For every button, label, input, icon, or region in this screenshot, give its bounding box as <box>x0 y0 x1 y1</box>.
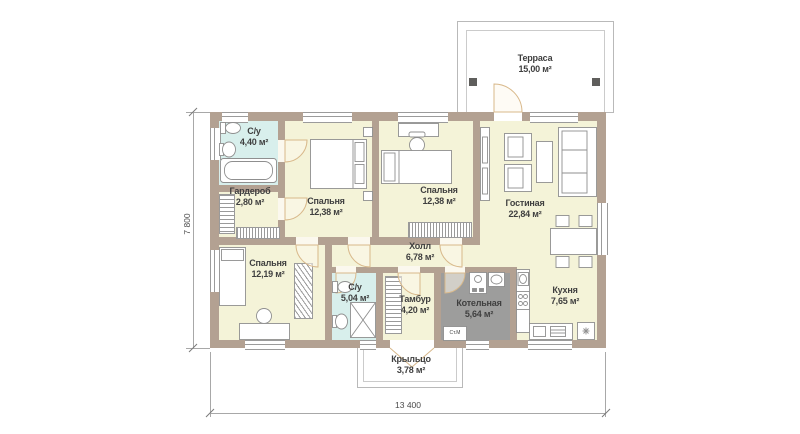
window-dining-right <box>597 203 608 255</box>
dimension-width-label: 13 400 <box>376 400 440 410</box>
room-name: Спальня <box>408 185 470 196</box>
room-name: Крыльцо <box>378 354 444 365</box>
room-name: Гардероб <box>218 186 282 197</box>
washing-machine-label: Ст.М <box>444 330 466 336</box>
room-name: Кухня <box>534 285 596 296</box>
terrace-post-right <box>592 78 600 86</box>
floor-plan: 7 800 13 400 Терраса 15,00 м² С/у 4,40 м… <box>0 0 800 434</box>
room-area: 2,80 м² <box>218 197 282 208</box>
room-area: 5,04 м² <box>326 293 384 304</box>
window-boiler-bottom <box>466 340 489 350</box>
dimension-height-label: 7 800 <box>182 202 192 246</box>
room-area: 4,20 м² <box>384 305 446 316</box>
room-name: Котельная <box>446 298 512 309</box>
room-label-hall: Холл 6,78 м² <box>388 241 452 263</box>
room-living <box>480 121 597 267</box>
room-label-kitchen: Кухня 7,65 м² <box>534 285 596 307</box>
door-opening-bathroom-2 <box>336 266 356 273</box>
room-label-bathroom-2: С/у 5,04 м² <box>326 282 384 304</box>
room-name: Тамбур <box>384 294 446 305</box>
door-opening-boiler <box>445 266 465 273</box>
room-label-terrace: Терраса 15,00 м² <box>500 53 570 75</box>
door-opening-bedroom-3 <box>296 237 318 245</box>
room-name: С/у <box>224 126 284 137</box>
room-area: 6,78 м² <box>388 252 452 263</box>
room-area: 12,19 м² <box>236 269 300 280</box>
room-bedroom-1 <box>285 121 372 237</box>
window-living-top <box>530 112 578 123</box>
room-label-bedroom-3: Спальня 12,19 м² <box>236 258 300 280</box>
room-name: Спальня <box>236 258 300 269</box>
room-label-living: Гостиная 22,84 м² <box>492 198 558 220</box>
room-area: 15,00 м² <box>500 64 570 75</box>
window-bedroom-3-bottom <box>245 340 285 350</box>
room-area: 5,64 м² <box>446 309 512 320</box>
terrace-post-left <box>469 78 477 86</box>
room-label-porch: Крыльцо 3,78 м² <box>378 354 444 376</box>
window-bedroom-1-top <box>303 112 352 123</box>
room-label-bathroom-1: С/у 4,40 м² <box>224 126 284 148</box>
room-label-vestibule: Тамбур 4,20 м² <box>384 294 446 316</box>
dimension-ext-right-bottom <box>605 352 606 417</box>
window-bathroom-1-left <box>210 128 221 160</box>
dimension-ext-left-bottom <box>210 352 211 417</box>
room-label-wardrobe: Гардероб 2,80 м² <box>218 186 282 208</box>
dimension-ext-top-left <box>186 112 210 113</box>
door-opening-vestibule <box>398 266 420 273</box>
dimension-line-left <box>193 112 194 348</box>
room-bedroom-2 <box>379 121 473 237</box>
room-label-bedroom-1: Спальня 12,38 м² <box>296 196 356 218</box>
window-bathroom-1-top <box>222 112 248 123</box>
room-name: Спальня <box>296 196 356 207</box>
bedroom-2-closet <box>408 222 472 238</box>
room-name: С/у <box>326 282 384 293</box>
window-bedroom-3-left <box>210 250 221 292</box>
window-bedroom-2-top <box>398 112 448 123</box>
room-name: Гостиная <box>492 198 558 209</box>
room-label-boiler: Котельная 5,64 м² <box>446 298 512 320</box>
room-area: 4,40 м² <box>224 137 284 148</box>
room-area: 22,84 м² <box>492 209 558 220</box>
room-area: 12,38 м² <box>408 196 470 207</box>
window-bathroom-2-bottom <box>360 340 376 350</box>
room-area: 3,78 м² <box>378 365 444 376</box>
window-kitchen-bottom <box>528 340 572 350</box>
hall-living-opening <box>473 245 480 267</box>
room-name: Терраса <box>500 53 570 64</box>
room-name: Холл <box>388 241 452 252</box>
room-area: 12,38 м² <box>296 207 356 218</box>
door-opening-terrace <box>494 112 522 121</box>
door-opening-entrance <box>390 340 434 348</box>
dimension-line-bottom <box>210 413 606 414</box>
room-area: 7,65 м² <box>534 296 596 307</box>
room-label-bedroom-2: Спальня 12,38 м² <box>408 185 470 207</box>
door-opening-bedroom-1 <box>348 237 370 245</box>
wardrobe-shelves-bottom <box>236 227 280 239</box>
dimension-ext-bottom-left <box>186 348 210 349</box>
